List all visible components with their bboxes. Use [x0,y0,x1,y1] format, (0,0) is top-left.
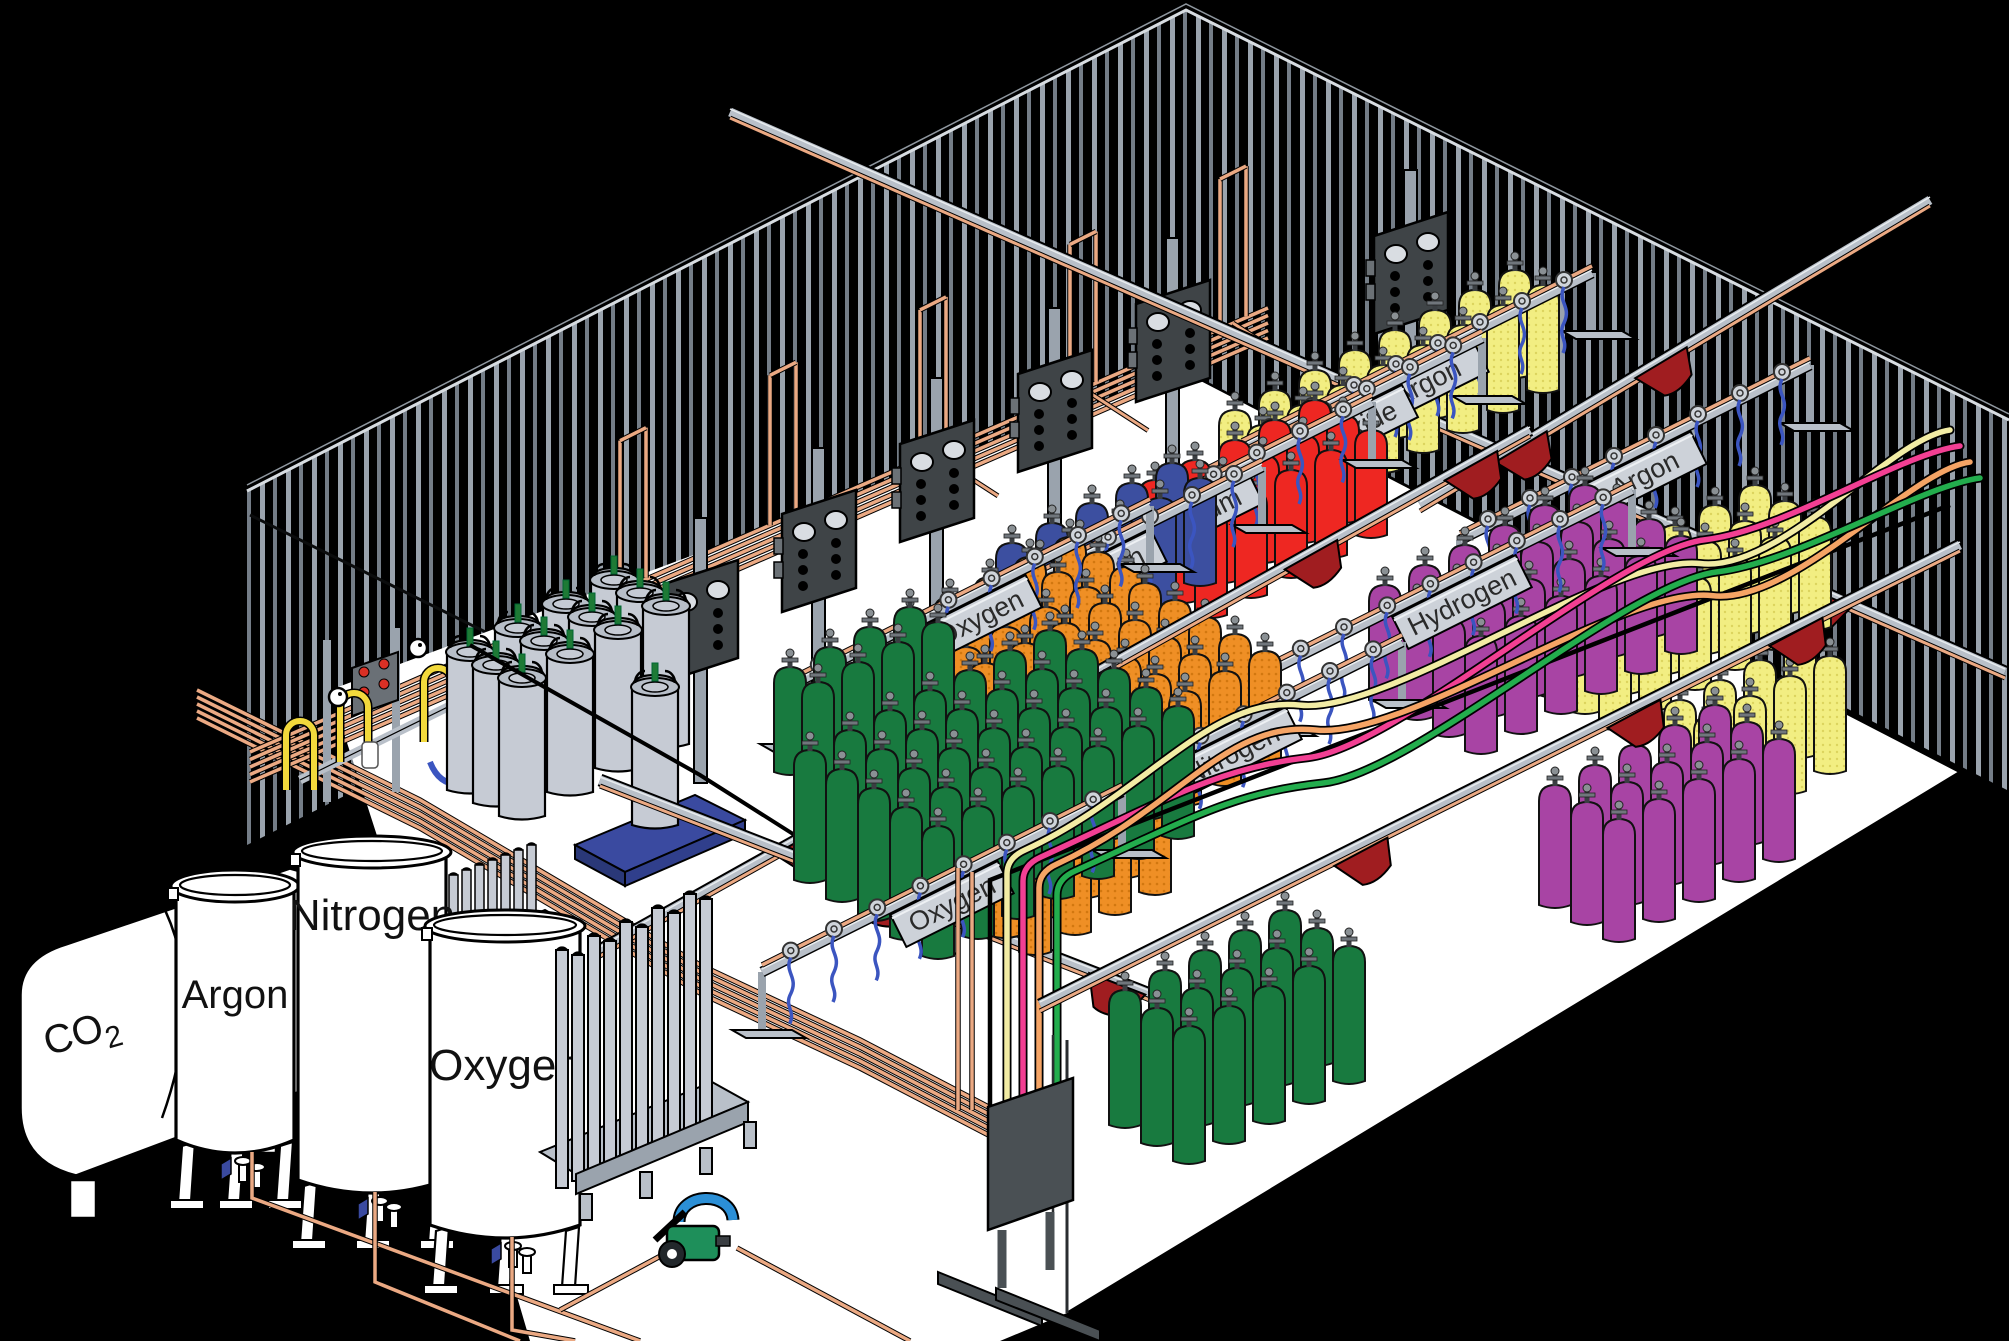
cylinder-valve-icon [1046,612,1054,620]
dewar-valve-icon [519,654,525,672]
manifold-valve-icon [1556,272,1572,288]
gas-cylinder [1539,785,1571,908]
cylinder-valve-icon [1219,457,1227,465]
gas-cylinder [1141,1008,1173,1146]
cylinder-valve-icon [1062,709,1070,717]
cylinder-valve-icon [1048,505,1056,513]
cylinder-valve-icon [1381,567,1389,575]
cylinder-valve-icon [1128,465,1136,473]
cylinder-valve-icon [1731,539,1739,547]
manifold-valve-icon [1365,641,1381,657]
cylinder-valve-icon [1511,252,1519,260]
cylinder-valve-icon [838,751,846,759]
dewar-valve-icon [637,569,643,587]
cylinder-valve-icon [1735,741,1743,749]
gas-tube [652,908,664,1146]
cylinder-valve-icon [1623,764,1631,772]
cylinder-valve-icon [1695,761,1703,769]
cylinder-valve-icon [906,589,914,597]
cylinder-valve-icon [1525,561,1533,569]
cylinder-valve-icon [1565,541,1573,549]
manifold-valve-icon [984,570,1000,586]
cylinder-valve-icon [1391,312,1399,320]
cylinder-valve-icon [1061,605,1069,613]
cylinder-valve-icon [1094,728,1102,736]
cylinder-valve-icon [814,664,822,672]
cylinder-valve-icon [1088,485,1096,493]
dewar-valve-icon [589,593,595,611]
cylinder-valve-icon [1637,538,1645,546]
manifold-valve-icon [1595,489,1611,505]
dewar-valve-icon [515,604,521,622]
cylinder-valve-icon [1655,781,1663,789]
dewar-valve-icon [611,556,617,574]
cylinder-valve-icon [1156,480,1164,488]
manifold-valve-icon [1226,466,1242,482]
cylinder-valve-icon [1110,650,1118,658]
manifold-valve-icon [1466,554,1482,570]
gas-cylinder [794,750,826,883]
cylinder-valve-icon [1299,387,1307,395]
manifold-valve-icon [783,943,799,959]
cylinder-valve-icon [1201,932,1209,940]
red-button-icon [379,679,389,689]
cylinder-valve-icon [1066,519,1074,527]
cylinder-valve-icon [878,731,886,739]
cylinder-valve-icon [1231,616,1239,624]
cylinder-valve-icon [1134,708,1142,716]
manifold-valve-icon [1472,314,1488,330]
cylinder-valve-icon [1581,467,1589,475]
gas-cylinder [1213,1006,1245,1144]
gas-tube [684,894,696,1132]
red-button-icon [359,667,369,677]
cylinder-valve-icon [1281,892,1289,900]
cylinder-valve-icon [1168,445,1176,453]
cylinder-valve-icon [1313,910,1321,918]
manifold-valve-icon [1552,511,1568,527]
manifold-valve-icon [1514,293,1530,309]
cylinder-valve-icon [1775,721,1783,729]
manifold-valve-icon [1774,364,1790,380]
cylinder-valve-icon [926,672,934,680]
cylinder-valve-icon [1259,437,1267,445]
cylinder-valve-icon [1030,690,1038,698]
gauge-icon [707,581,729,599]
gas-tube [572,955,584,1181]
cylinder-valve-icon [1101,585,1109,593]
manifold-valve-icon [826,921,842,937]
cylinder-valve-icon [1225,988,1233,996]
gauge-icon [409,639,427,657]
cylinder-valve-icon [1273,930,1281,938]
isometric-scene: ArgonCarbon DioxideHeliumNitrogenOxygenA… [0,0,2009,1341]
cylinder-valve-icon [1231,392,1239,400]
cylinder-valve-icon [1477,618,1485,626]
cylinder-valve-icon [870,770,878,778]
cylinder-valve-icon [1026,539,1034,547]
cylinder-valve-icon [902,789,910,797]
gas-cylinder [1109,990,1141,1128]
cylinder-valve-icon [1161,952,1169,960]
cylinder-valve-icon [1741,503,1749,511]
dewar-valve-icon [652,663,658,681]
cylinder-valve-icon [934,808,942,816]
gas-cylinder [1253,986,1285,1124]
gauge-icon [1385,245,1407,263]
cylinder-valve-icon [1196,460,1204,468]
cylinder-valve-icon [1185,1008,1193,1016]
cylinder-valve-icon [1259,407,1267,415]
cylinder-valve-icon [1743,704,1751,712]
manifold-valve-icon [1359,381,1375,397]
cylinder-valve-icon [1091,622,1099,630]
cylinder-valve-icon [1671,507,1679,515]
liquid-dewar [499,666,545,820]
gas-tube [668,913,680,1139]
manifold-valve-icon [869,899,885,915]
argon-tank-label: Argon [182,973,289,1017]
cylinder-valve-icon [910,750,918,758]
cylinder-valve-icon [1082,569,1090,577]
cylinder-valve-icon [1038,651,1046,659]
cylinder-valve-icon [1233,950,1241,958]
manifold-valve-icon [1402,359,1418,375]
cylinder-valve-icon [1241,912,1249,920]
gauge-icon [1029,383,1051,401]
cylinder-valve-icon [1021,625,1029,633]
cylinder-valve-icon [1327,432,1335,440]
cylinder-valve-icon [1615,801,1623,809]
gas-tube [588,936,600,1174]
cylinder-valve-icon [1583,784,1591,792]
gas-cylinder [826,769,858,902]
cylinder-valve-icon [846,712,854,720]
cylinder-valve-icon [1121,639,1129,647]
cylinder-valve-icon [1311,382,1319,390]
liquid-dewar [547,642,593,796]
cylinder-valve-icon [958,691,966,699]
cylinder-valve-icon [1181,673,1189,681]
manifold-valve-icon [1184,487,1200,503]
cylinder-valve-icon [1121,972,1129,980]
cylinder-valve-icon [981,645,989,653]
gauge-icon [911,453,933,471]
cylinder-valve-icon [1022,729,1030,737]
cylinder-valve-icon [1174,688,1182,696]
cylinder-valve-icon [1042,589,1050,597]
gas-tube [604,941,616,1167]
red-button-icon [379,659,389,669]
manifold-valve-icon [1648,427,1664,443]
gas-cylinder [1763,739,1795,862]
cylinder-valve-icon [1171,582,1179,590]
gas-cylinder [1643,799,1675,922]
manifold-valve-icon [1113,505,1129,521]
manifold-valve-icon [1509,533,1525,549]
gauge-icon [329,688,347,706]
manifold-valve-icon [1422,576,1438,592]
cylinder-valve-icon [1459,307,1467,315]
gas-filling-plant-illustration: ArgonCarbon DioxideHeliumNitrogenOxygenA… [0,0,2009,1341]
cylinder-valve-icon [946,579,954,587]
cylinder-valve-icon [854,644,862,652]
manifold-valve-icon [1522,490,1538,506]
gas-cylinder [1333,946,1365,1084]
cylinder-valve-icon [1305,948,1313,956]
cylinder-valve-icon [1006,632,1014,640]
cylinder-valve-icon [1826,638,1834,646]
manifold-valve-icon [1322,663,1338,679]
cylinder-valve-icon [1539,267,1547,275]
cylinder-valve-icon [1221,653,1229,661]
cylinder-valve-icon [1421,547,1429,555]
cylinder-valve-icon [1591,747,1599,755]
cylinder-valve-icon [918,711,926,719]
gauge-icon [1061,371,1083,389]
cylinder-valve-icon [806,732,814,740]
manifold-tube [527,845,536,917]
cylinder-valve-icon [1711,687,1719,695]
cylinder-valve-icon [1070,670,1078,678]
cylinder-valve-icon [998,671,1006,679]
cylinder-valve-icon [1036,540,1044,548]
cylinder-valve-icon [1501,507,1509,515]
cylinder-valve-icon [1711,487,1719,495]
gauge-icon [1417,233,1439,251]
cylinder-valve-icon [1014,768,1022,776]
cylinder-valve-icon [1131,602,1139,610]
gas-cylinder [1814,656,1846,774]
manifold-valve-icon [1249,445,1265,461]
manifold-valve-icon [1379,597,1395,613]
gas-cylinder [1723,759,1755,882]
manifold-valve-icon [940,592,956,608]
cylinder-valve-icon [1265,968,1273,976]
dewar-valve-icon [541,617,547,635]
cylinder-valve-icon [1751,467,1759,475]
cylinder-valve-icon [1471,272,1479,280]
cylinder-valve-icon [826,629,834,637]
cylinder-valve-icon [1191,442,1199,450]
cylinder-valve-icon [1703,724,1711,732]
cylinder-valve-icon [974,788,982,796]
cylinder-valve-icon [786,649,794,657]
gauge-icon [943,441,965,459]
manifold-valve-icon [1732,385,1748,401]
manifold-valve-icon [1336,619,1352,635]
cylinder-valve-icon [1419,327,1427,335]
cylinder-valve-icon [1663,744,1671,752]
cylinder-valve-icon [1551,767,1559,775]
gas-tube [700,899,712,1125]
manifold-valve-icon [1335,401,1351,417]
cylinder-valve-icon [1541,487,1549,495]
cylinder-valve-icon [1231,422,1239,430]
cylinder-valve-icon [1054,748,1062,756]
manifold-valve-icon [1445,337,1461,353]
cylinder-valve-icon [934,604,942,612]
cylinder-valve-icon [1781,483,1789,491]
manifold-valve-icon [1042,813,1058,829]
manifold-valve-icon [1027,549,1043,565]
cylinder-valve-icon [966,652,974,660]
manifold-valve-icon [1606,448,1622,464]
manifold-valve-icon [1292,423,1308,439]
cylinder-valve-icon [1345,928,1353,936]
cylinder-valve-icon [982,749,990,757]
cylinder-valve-icon [1261,633,1269,641]
cylinder-valve-icon [986,559,994,567]
cylinder-valve-icon [1431,292,1439,300]
cylinder-valve-icon [1191,636,1199,644]
cylinder-valve-icon [1701,523,1709,531]
dewar-valve-icon [567,630,573,648]
manifold-valve-icon [1070,527,1086,543]
cylinder-valve-icon [1151,656,1159,664]
manifold-valve-icon [999,835,1015,851]
manifold-valve-icon [912,878,928,894]
cylinder-valve-icon [866,609,874,617]
manifold-valve-icon [1293,641,1309,657]
gauge-icon [793,523,815,541]
dewar-valve-icon [663,582,669,600]
cylinder-valve-icon [1461,527,1469,535]
cylinder-valve-icon [1379,347,1387,355]
cylinder-valve-icon [950,730,958,738]
cylinder-valve-icon [1008,525,1016,533]
manifold-valve-icon [1480,511,1496,527]
cylinder-valve-icon [1142,669,1150,677]
cylinder-valve-icon [1141,565,1149,573]
cylinder-valve-icon [1153,990,1161,998]
cylinder-valve-icon [990,710,998,718]
gas-cylinder [1173,1026,1205,1164]
cylinder-valve-icon [1351,332,1359,340]
gauge-icon [1147,313,1169,331]
cylinder-valve-icon [886,692,894,700]
cylinder-valve-icon [1671,707,1679,715]
gauge-icon [825,511,847,529]
dewar-valve-icon [615,606,621,624]
gas-tube [556,950,568,1188]
cylinder-valve-icon [1339,367,1347,375]
cylinder-valve-icon [1193,970,1201,978]
cylinder-valve-icon [942,769,950,777]
gas-tube [620,922,632,1160]
manifold-valve-icon [1690,406,1706,422]
manifold-valve-icon [1279,685,1295,701]
cylinder-valve-icon [894,624,902,632]
gas-cylinder [1571,802,1603,925]
gas-cylinder [1683,779,1715,902]
dewar-valve-icon [467,628,473,646]
cylinder-valve-icon [1645,501,1653,509]
argon-tank: Argon [168,870,302,1209]
cylinder-valve-icon [1287,452,1295,460]
cylinder-valve-icon [1271,372,1279,380]
gas-tube [636,927,648,1153]
cylinder-valve-icon [1499,287,1507,295]
cylinder-valve-icon [1746,678,1754,686]
dewar-valve-icon [563,580,569,598]
cylinder-valve-icon [1102,689,1110,697]
cylinder-valve-icon [1271,402,1279,410]
cylinder-valve-icon [1311,352,1319,360]
gas-cylinder [1293,966,1325,1104]
gas-cylinder [1603,819,1635,942]
cylinder-valve-icon [1677,518,1685,526]
cylinder-valve-icon [1078,631,1086,639]
